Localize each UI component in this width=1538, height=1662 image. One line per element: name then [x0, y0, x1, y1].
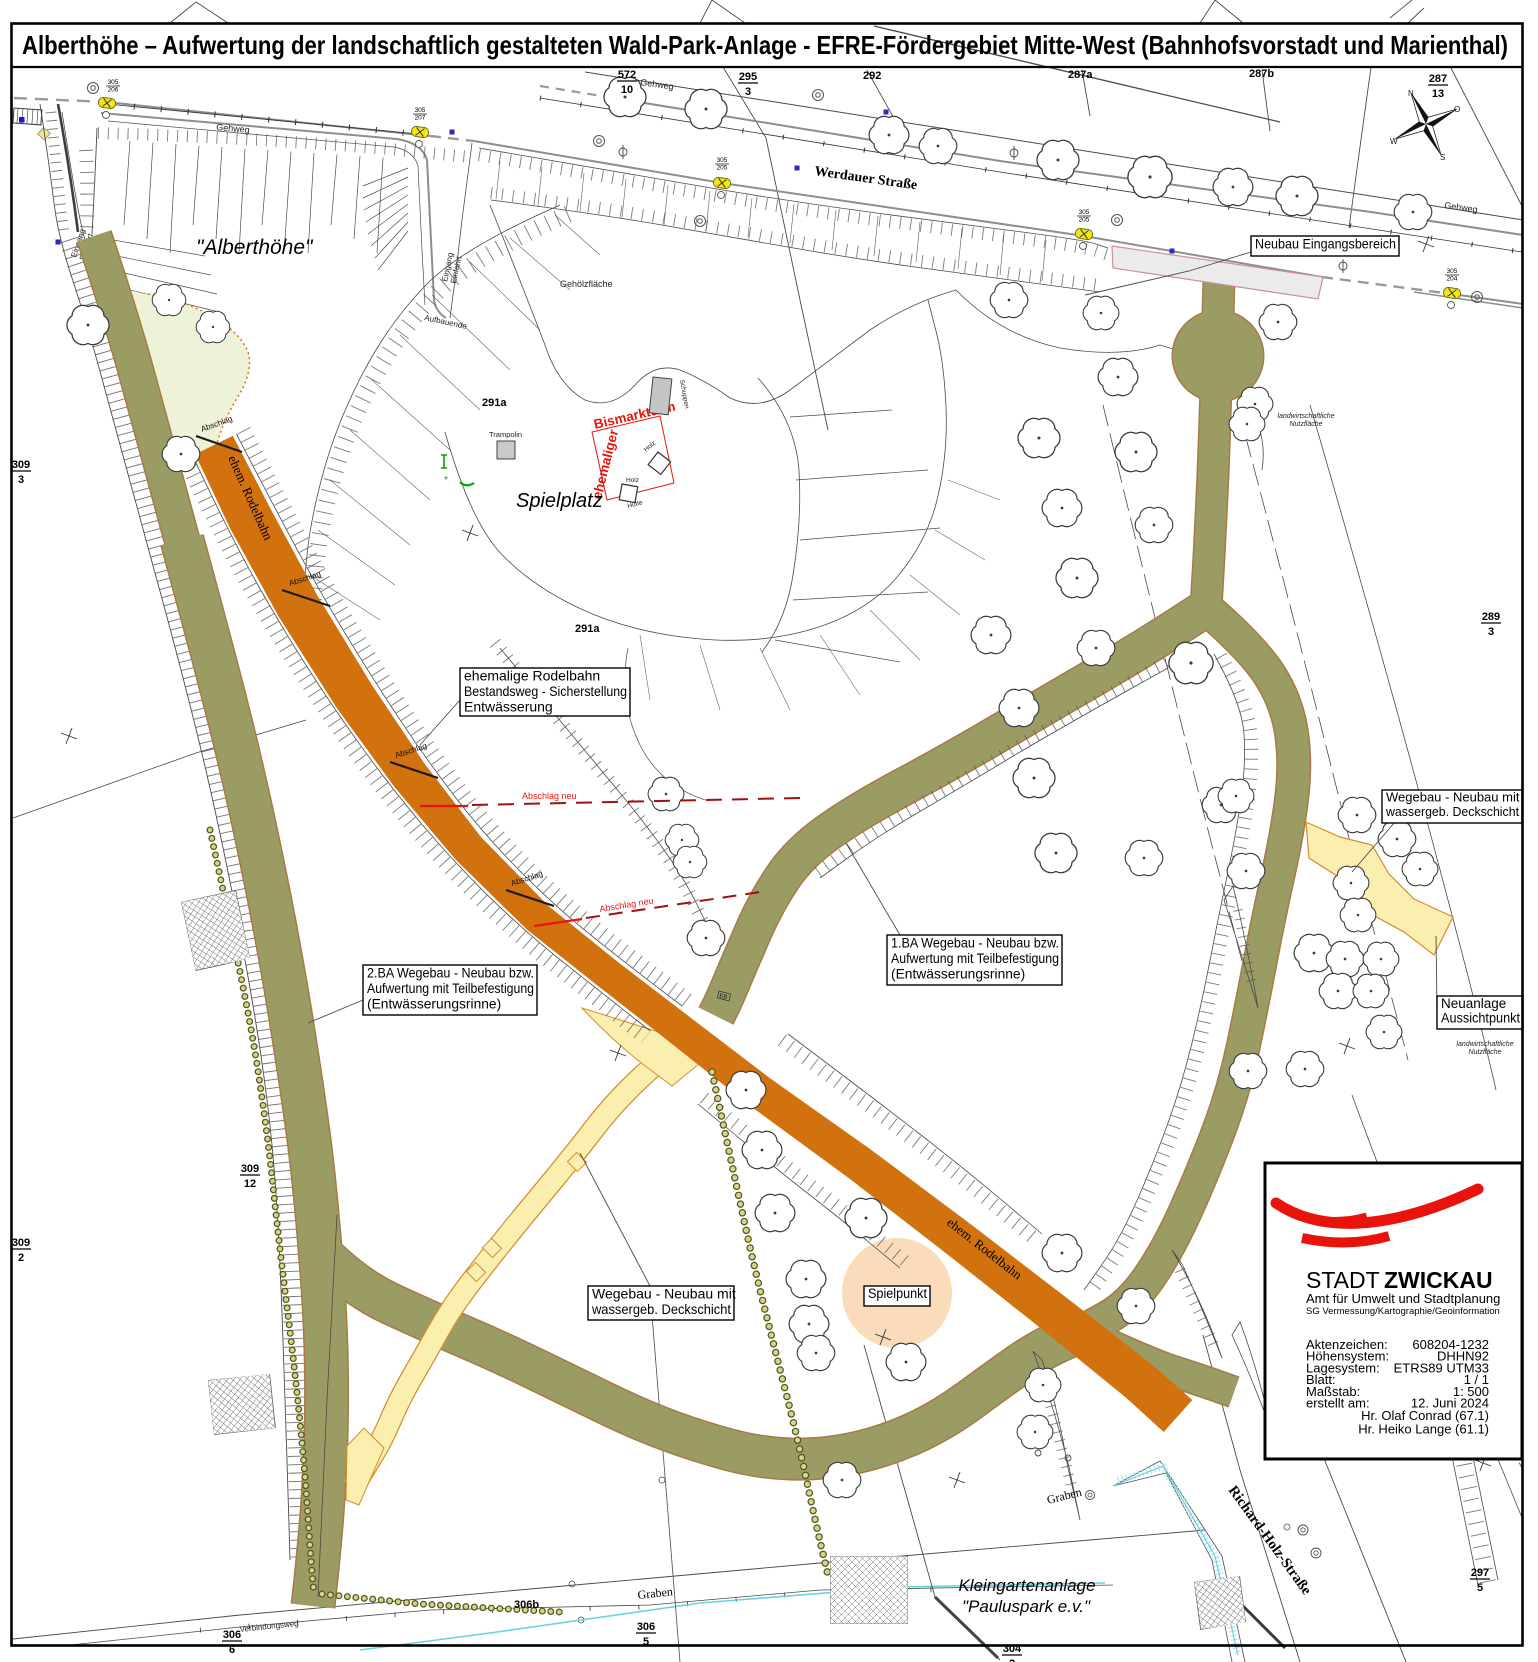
- svg-text:306: 306: [637, 1621, 655, 1633]
- svg-text:572: 572: [618, 69, 636, 81]
- svg-text:287: 287: [1429, 73, 1447, 85]
- svg-text:305: 305: [415, 107, 426, 114]
- svg-text:306: 306: [223, 1629, 241, 1641]
- svg-text:Wegebau - Neubau mit: Wegebau - Neubau mit: [592, 1286, 736, 1302]
- svg-text:297: 297: [1471, 1567, 1489, 1579]
- svg-text:(Entwässerungsrinne): (Entwässerungsrinne): [891, 966, 1025, 981]
- svg-text:Spielpunkt: Spielpunkt: [868, 1286, 927, 1301]
- svg-text:205: 205: [1079, 217, 1090, 224]
- svg-text:Amt für Umwelt und Stadtplanun: Amt für Umwelt und Stadtplanung: [1306, 1291, 1500, 1306]
- svg-text:Aufwertung mit Teilbefestigung: Aufwertung mit Teilbefestigung: [367, 981, 534, 996]
- svg-text:Gehölzfläche: Gehölzfläche: [560, 279, 613, 289]
- svg-text:305: 305: [1079, 209, 1090, 216]
- svg-text:204: 204: [1447, 276, 1458, 283]
- svg-text:Kleingartenanlage: Kleingartenanlage: [958, 1576, 1095, 1595]
- svg-text:289: 289: [1482, 611, 1500, 623]
- svg-text:291a: 291a: [482, 397, 507, 409]
- svg-text:305: 305: [108, 79, 119, 86]
- svg-text:Neubau Eingangsbereich: Neubau Eingangsbereich: [1255, 236, 1396, 251]
- svg-text:10: 10: [621, 84, 633, 96]
- svg-text:305: 305: [1447, 268, 1458, 275]
- svg-text:Trampolin: Trampolin: [489, 430, 522, 439]
- svg-text:"Pauluspark e.v.": "Pauluspark e.v.": [962, 1597, 1091, 1616]
- svg-text:wassergeb. Deckschicht: wassergeb. Deckschicht: [1385, 804, 1519, 819]
- svg-text:O: O: [1454, 105, 1460, 114]
- svg-text:309: 309: [241, 1163, 259, 1175]
- svg-text:Nutzfläche: Nutzfläche: [1468, 1049, 1501, 1056]
- svg-text:landwirtschaftliche: landwirtschaftliche: [1277, 413, 1334, 420]
- svg-text:13: 13: [1432, 88, 1444, 100]
- svg-text:287a: 287a: [1068, 69, 1093, 81]
- svg-text:Holz: Holz: [626, 477, 639, 484]
- svg-text:W: W: [1390, 137, 1398, 146]
- svg-text:Neuanlage: Neuanlage: [1441, 996, 1506, 1011]
- svg-text:Aussichtpunkt: Aussichtpunkt: [1441, 1011, 1520, 1026]
- svg-text:2.BA Wegebau - Neubau bzw.: 2.BA Wegebau - Neubau bzw.: [367, 965, 534, 980]
- svg-text:206: 206: [108, 87, 119, 94]
- svg-text:ZWICKAU: ZWICKAU: [1384, 1267, 1493, 1293]
- svg-text:5: 5: [1477, 1582, 1483, 1594]
- svg-text:Aufwertung mit Teilbefestigung: Aufwertung mit Teilbefestigung: [891, 951, 1059, 966]
- svg-text:landwirtschaftliche: landwirtschaftliche: [1456, 1041, 1513, 1048]
- svg-text:309: 309: [12, 459, 30, 471]
- svg-text:(Entwässerungsrinne): (Entwässerungsrinne): [367, 996, 501, 1011]
- svg-text:205: 205: [717, 165, 728, 172]
- svg-text:306b: 306b: [514, 1599, 539, 1611]
- svg-text:2: 2: [18, 1252, 24, 1264]
- svg-text:*: *: [444, 475, 448, 486]
- svg-text:3: 3: [18, 474, 24, 486]
- svg-text:Alberthöhe – Aufwertung der la: Alberthöhe – Aufwertung der landschaftli…: [22, 32, 1508, 60]
- svg-text:207: 207: [415, 115, 426, 122]
- svg-text:309: 309: [12, 1237, 30, 1249]
- svg-text:291a: 291a: [575, 623, 600, 635]
- svg-text:287b: 287b: [1249, 68, 1274, 80]
- svg-text:STADT: STADT: [1306, 1267, 1380, 1293]
- svg-text:"Alberthöhe": "Alberthöhe": [196, 236, 314, 259]
- svg-text:Wegebau - Neubau mit: Wegebau - Neubau mit: [1386, 790, 1520, 805]
- svg-text:3: 3: [1488, 626, 1494, 638]
- svg-text:SG Vermessung/Kartographie/Geo: SG Vermessung/Kartographie/Geoinformatio…: [1306, 1306, 1500, 1317]
- svg-text:ehemalige Rodelbahn: ehemalige Rodelbahn: [464, 668, 600, 684]
- svg-text:Bestandsweg - Sicherstellung: Bestandsweg - Sicherstellung: [464, 683, 627, 699]
- svg-text:Hr. Heiko Lange (61.1): Hr. Heiko Lange (61.1): [1358, 1422, 1489, 1437]
- svg-text:12: 12: [244, 1178, 256, 1190]
- svg-text:wassergeb. Deckschicht: wassergeb. Deckschicht: [591, 1301, 731, 1317]
- svg-text:Nutzfläche: Nutzfläche: [1289, 421, 1322, 428]
- svg-text:S: S: [1440, 153, 1445, 162]
- svg-text:erstellt am:: erstellt am:: [1306, 1396, 1370, 1411]
- svg-text:3: 3: [745, 86, 751, 98]
- svg-text:295: 295: [739, 71, 757, 83]
- svg-text:N: N: [1408, 89, 1414, 98]
- svg-text:305: 305: [717, 157, 728, 164]
- svg-text:1.BA Wegebau - Neubau bzw.: 1.BA Wegebau - Neubau bzw.: [891, 935, 1059, 950]
- svg-text:Entwässerung: Entwässerung: [464, 699, 553, 715]
- svg-text:Spielplatz: Spielplatz: [516, 490, 603, 512]
- svg-text:Abschlag neu: Abschlag neu: [522, 791, 577, 801]
- svg-text:2: 2: [1009, 1658, 1015, 1662]
- svg-text:292: 292: [863, 70, 881, 82]
